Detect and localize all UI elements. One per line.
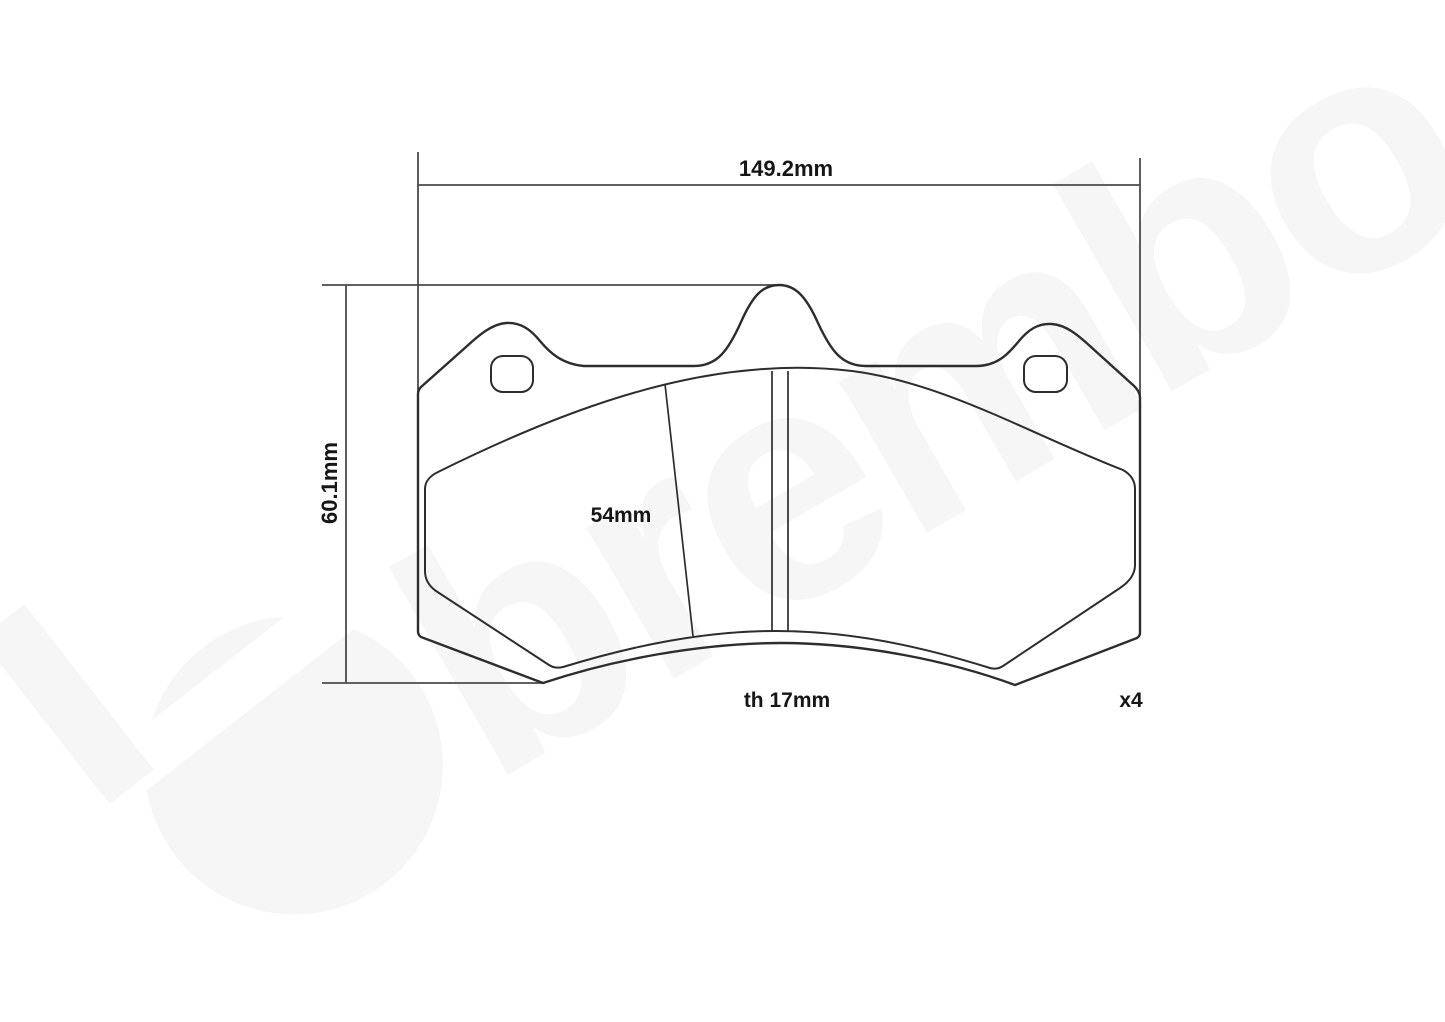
watermark-disc-ascender bbox=[0, 604, 154, 804]
drawing-sheet: brembo 149.2mm 60.1mm 54mm th 17mm bbox=[0, 0, 1445, 1022]
quantity-label: x4 bbox=[1119, 689, 1143, 712]
width-dimension-label: 149.2mm bbox=[739, 156, 833, 181]
thickness-label: th 17mm bbox=[744, 689, 830, 712]
brake-pad-technical-drawing: brembo 149.2mm 60.1mm 54mm th 17mm bbox=[0, 0, 1445, 1022]
watermark-brand-text: brembo bbox=[339, 0, 1445, 847]
brembo-watermark: brembo bbox=[0, 0, 1445, 1022]
pad-height-label: 54mm bbox=[591, 504, 652, 527]
brembo-disc-logo-icon bbox=[165, 637, 422, 894]
left-abutment-hole bbox=[491, 356, 533, 392]
height-dimension-label: 60.1mm bbox=[317, 442, 342, 524]
